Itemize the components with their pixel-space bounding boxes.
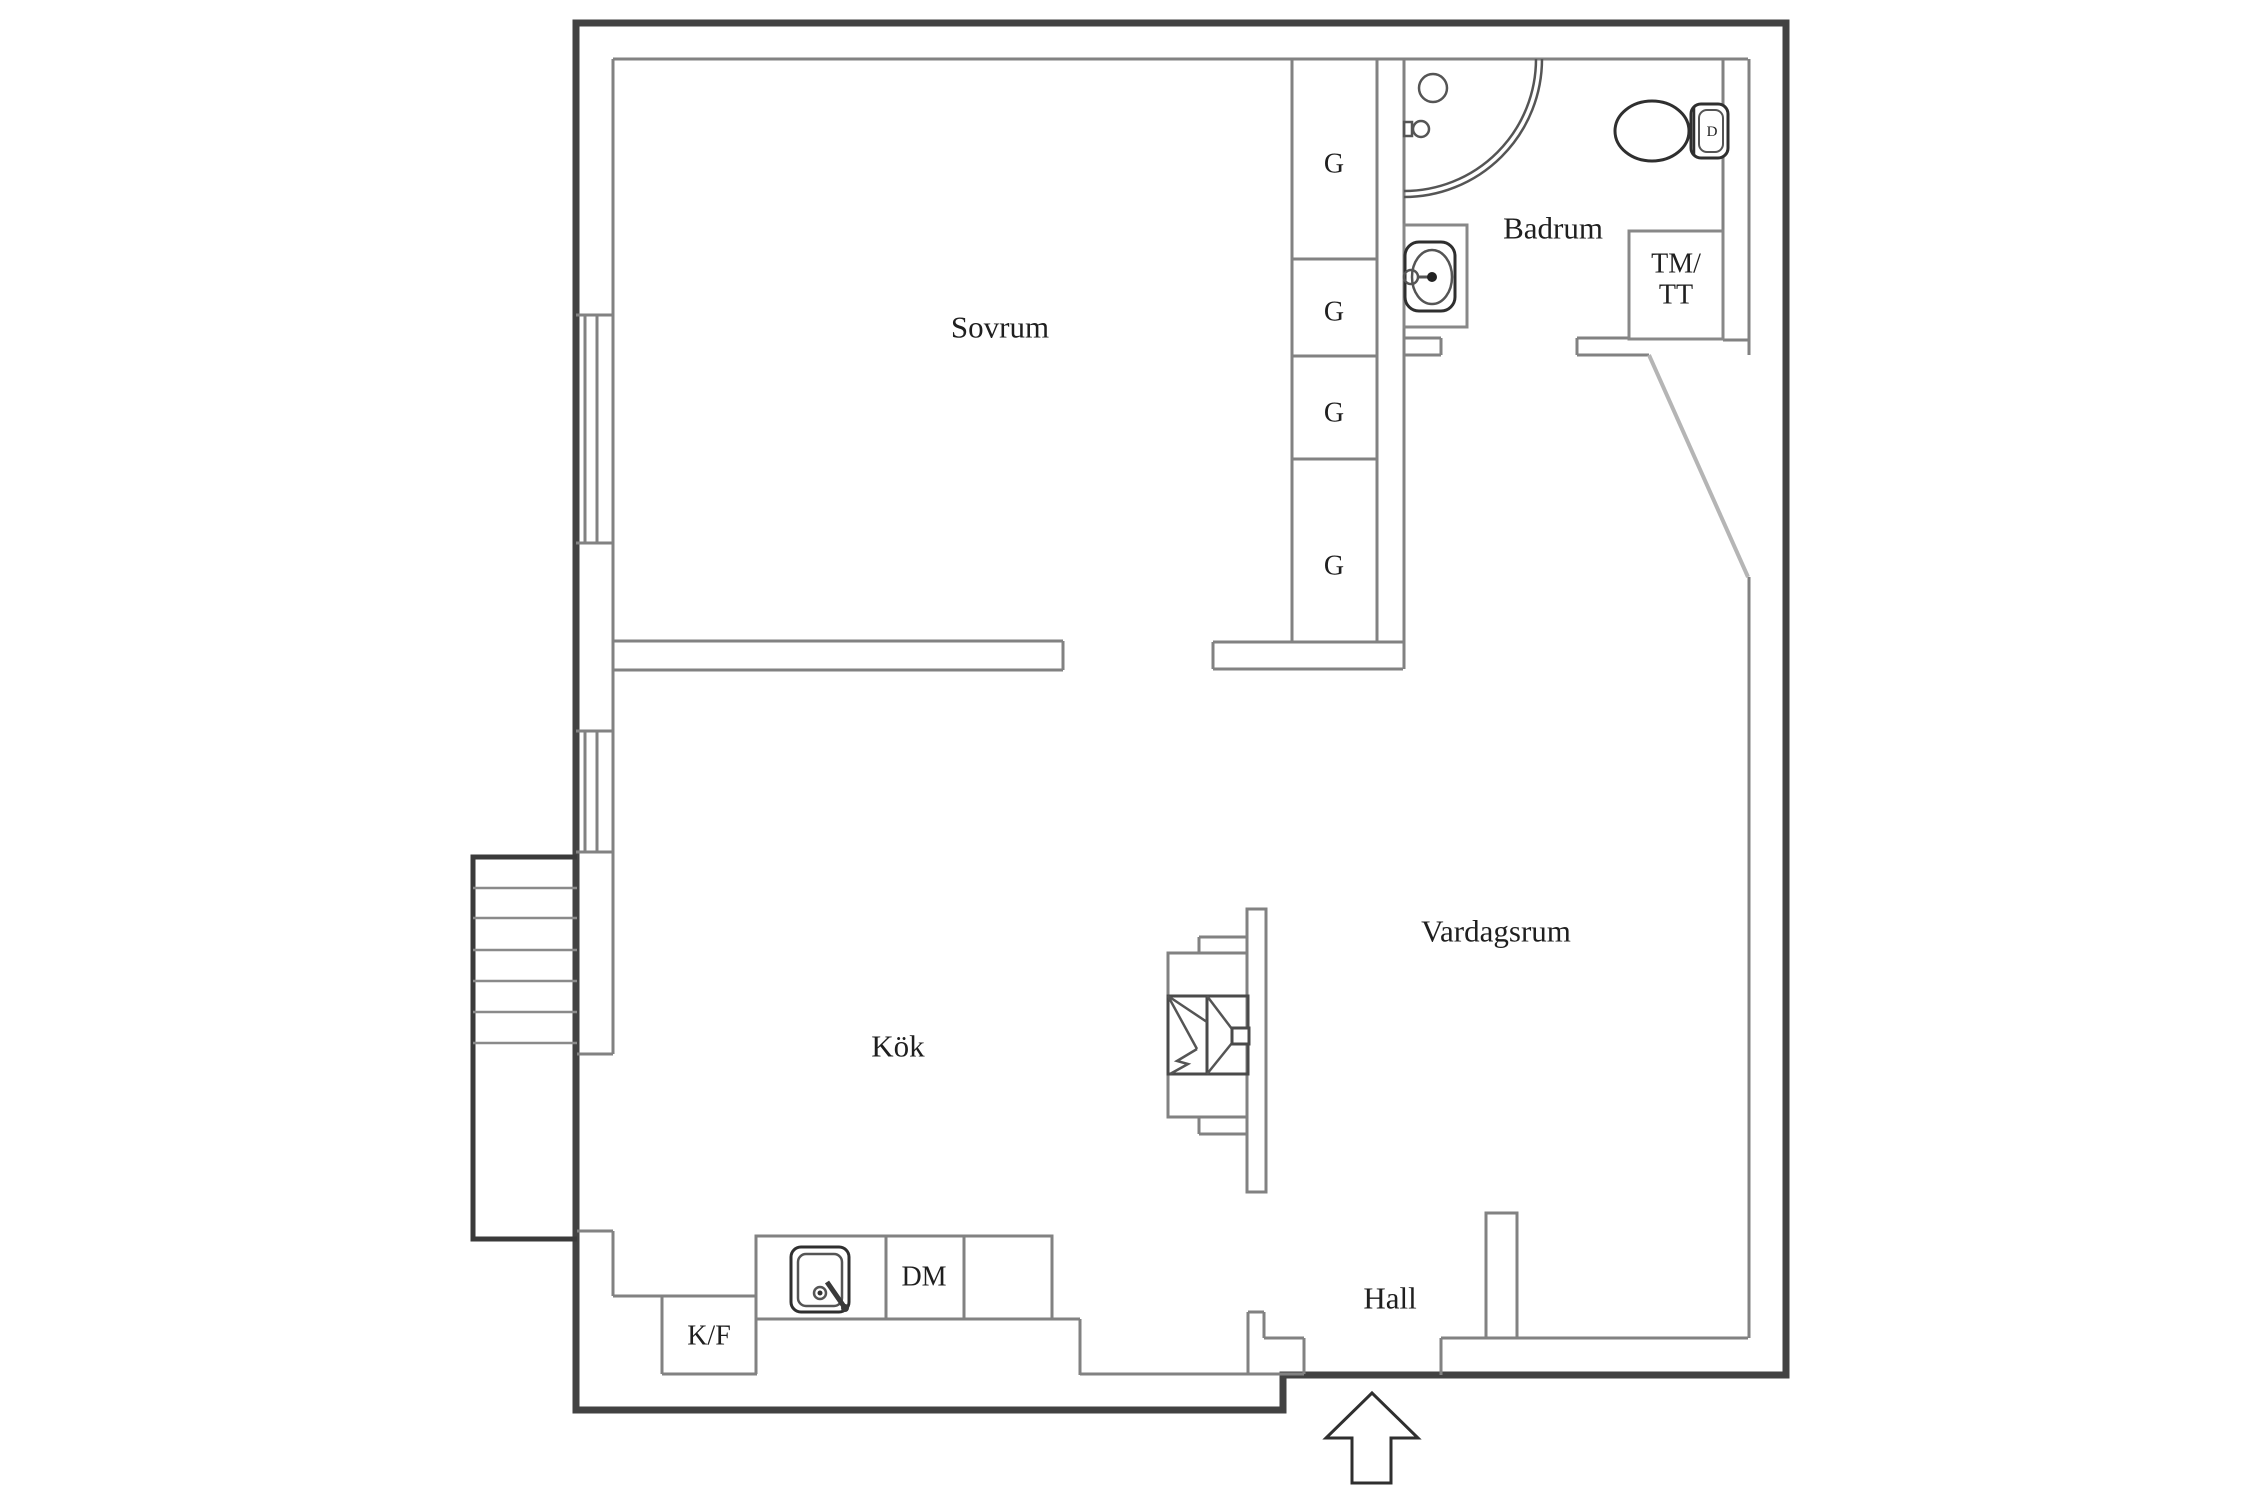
exterior-wall-outline (576, 23, 1786, 1410)
wardrobe-label: G (1324, 297, 1344, 328)
dishwasher-label: DM (901, 1262, 946, 1293)
interior-walls (577, 59, 1749, 1338)
stairs-outline (473, 857, 577, 1239)
fridge-freezer-label: K/F (687, 1321, 731, 1352)
shower-icon (1404, 59, 1542, 197)
room-label-hall: Hall (1363, 1281, 1416, 1316)
room-label-bathroom: Badrum (1503, 211, 1603, 246)
room-label-bedroom: Sovrum (951, 310, 1049, 345)
exterior-stairs (473, 857, 577, 1239)
door-leaf (1649, 355, 1748, 577)
kitchen-fittings (662, 1236, 1080, 1375)
toilet-icon: D (1615, 101, 1728, 161)
bathroom-sink-icon (1404, 225, 1467, 327)
room-label-kitchen: Kök (871, 1029, 925, 1064)
fireplace-icon (1168, 909, 1266, 1192)
entrance-arrow-icon (1326, 1393, 1418, 1483)
kitchen-sink-icon (791, 1247, 849, 1312)
bedroom-south-wall (613, 641, 1403, 670)
wardrobe-label: G (1324, 551, 1344, 582)
bedroom-window (576, 315, 613, 543)
kitchen-window (576, 731, 613, 852)
hall-wall-stub (1486, 1213, 1517, 1338)
stair-treads (473, 888, 577, 1043)
kitchen-living-wall-strip (1247, 909, 1266, 1192)
washer-dryer-label-line1: TM/ (1651, 249, 1701, 280)
toilet-button-label: D (1707, 124, 1718, 140)
floorplan-drawing: D Sovrum Badrum Kök Vardagsrum Hall G G … (0, 0, 2250, 1500)
wardrobe-label: G (1324, 149, 1344, 180)
floorplan-canvas: D Sovrum Badrum Kök Vardagsrum Hall G G … (0, 0, 2250, 1500)
room-label-living-room: Vardagsrum (1421, 914, 1571, 949)
washer-dryer-label-line2: TT (1659, 280, 1693, 311)
shower-drain-icon (1419, 74, 1447, 102)
wardrobe-label: G (1324, 398, 1344, 429)
shower-mixer-icon (1404, 122, 1412, 136)
